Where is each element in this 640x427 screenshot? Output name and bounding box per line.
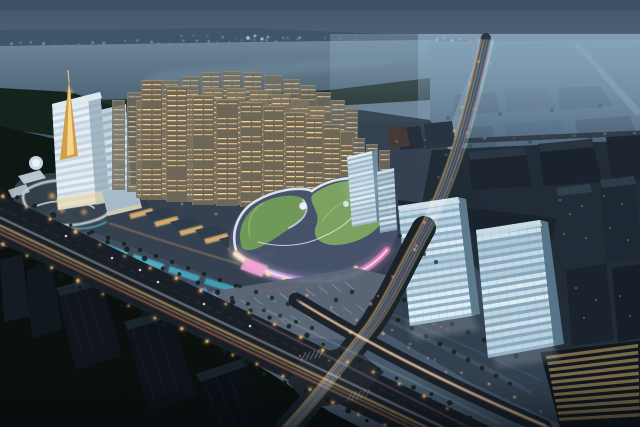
streetlights-road-b	[415, 245, 417, 247]
windows	[153, 159, 161, 160]
windows	[204, 109, 213, 110]
residential-front	[166, 86, 187, 87]
windows	[178, 115, 186, 116]
windows	[296, 146, 304, 147]
windows	[273, 98, 281, 99]
streetlights-cross	[573, 135, 574, 136]
windows	[242, 111, 251, 112]
shop-back-glow	[215, 213, 217, 215]
shore-light-cluster	[254, 35, 256, 37]
windows	[168, 135, 177, 136]
windows	[311, 115, 318, 116]
residential-back	[201, 72, 220, 73]
windows	[119, 154, 124, 155]
windows	[143, 114, 152, 115]
cars-white	[111, 257, 114, 260]
windows	[194, 169, 203, 170]
shore-light-cluster	[267, 36, 269, 38]
windows	[287, 146, 295, 147]
windows	[168, 115, 177, 116]
avenue-trees	[87, 232, 90, 235]
windows	[204, 199, 213, 200]
avenue-trees	[142, 256, 148, 262]
windows	[347, 112, 352, 113]
windows	[242, 106, 251, 107]
windows	[296, 116, 304, 117]
parking-trees	[246, 302, 250, 306]
roof-dome	[343, 201, 349, 207]
streetlights-road-b	[477, 60, 479, 62]
windows	[307, 177, 315, 178]
windows	[252, 181, 261, 182]
windows	[315, 152, 322, 153]
windows	[352, 127, 357, 128]
windows	[252, 141, 261, 142]
windows	[347, 122, 352, 123]
residential-back	[331, 100, 345, 101]
windows	[232, 80, 240, 81]
windows	[218, 153, 227, 154]
windows	[242, 171, 251, 172]
residential-mid	[226, 88, 246, 89]
windows	[218, 118, 227, 119]
windows	[168, 95, 177, 96]
avenue-trees	[287, 324, 292, 329]
windows	[119, 169, 124, 170]
avenue-trees	[244, 360, 250, 366]
windows	[218, 148, 227, 149]
windows	[114, 119, 119, 120]
avenue-trees	[57, 273, 64, 280]
windows	[204, 129, 213, 130]
shore-lights	[193, 35, 194, 36]
windows	[333, 119, 339, 120]
streetlight-halos	[23, 205, 29, 211]
plaza-trees	[438, 342, 443, 347]
windows	[354, 152, 359, 153]
windows	[218, 143, 227, 144]
windows	[228, 178, 237, 179]
windows	[143, 159, 152, 160]
windows	[153, 124, 161, 125]
windows	[143, 99, 152, 100]
windows	[281, 103, 289, 104]
residential-front	[141, 80, 162, 81]
scene-root	[0, 0, 640, 427]
windows	[287, 136, 295, 137]
streetlights-road-b	[458, 156, 459, 157]
avenue-trees	[18, 254, 22, 258]
windows	[168, 165, 177, 166]
windows	[381, 169, 386, 170]
windows	[178, 165, 186, 166]
residential-east	[379, 150, 390, 151]
windows	[381, 159, 386, 160]
windows	[228, 158, 237, 159]
windows	[114, 149, 119, 150]
residential-back	[316, 92, 331, 93]
windows	[218, 158, 227, 159]
windows	[252, 106, 261, 107]
windows	[178, 155, 186, 156]
windows	[205, 92, 213, 93]
dark-tower-windows	[595, 299, 597, 301]
windows	[359, 147, 364, 148]
shore-lights	[10, 43, 12, 45]
dark-tower-windows	[609, 227, 611, 229]
streetlight-halos	[147, 265, 153, 271]
streetlight-halos	[370, 369, 376, 375]
plaza-trees	[480, 366, 485, 371]
windows	[253, 86, 261, 87]
windows	[265, 110, 274, 111]
residential-front	[240, 102, 262, 103]
windows	[242, 141, 251, 142]
windows	[168, 100, 177, 101]
windows	[218, 138, 227, 139]
streetlight-halos	[47, 216, 53, 222]
windows	[168, 120, 177, 121]
residential-front	[166, 86, 187, 202]
windows	[287, 126, 295, 127]
plaza-lights	[445, 371, 447, 373]
windows	[242, 191, 251, 192]
windows	[368, 148, 373, 149]
streetlights-road-b	[444, 202, 446, 204]
streetlight-halos	[197, 287, 205, 295]
avenue-trees	[124, 246, 130, 252]
streetlights-road-c	[306, 294, 309, 297]
windows	[194, 119, 203, 120]
streetlights-cross	[633, 132, 635, 134]
windows	[129, 151, 135, 152]
windows	[129, 161, 135, 162]
dark-tower-windows	[559, 199, 561, 201]
windows	[228, 168, 237, 169]
windows	[129, 136, 135, 137]
cars-white	[203, 303, 206, 306]
windows	[119, 159, 124, 160]
residential-front	[216, 99, 217, 206]
windows	[194, 199, 203, 200]
windows	[178, 120, 186, 121]
windows	[342, 170, 348, 171]
dark-tower-windows	[629, 315, 631, 317]
red-flags	[278, 288, 280, 290]
windows	[129, 156, 135, 157]
windows	[119, 174, 124, 175]
windows	[143, 169, 152, 170]
windows	[296, 161, 304, 162]
residential-mid	[203, 88, 223, 89]
plaza-lights	[427, 357, 429, 359]
windows	[315, 147, 322, 148]
windows	[204, 104, 213, 105]
windows	[114, 134, 119, 135]
shore-lights	[282, 37, 284, 39]
windows	[302, 94, 309, 95]
windows	[260, 99, 268, 100]
windows	[178, 180, 186, 181]
windows	[168, 105, 177, 106]
windows	[153, 119, 161, 120]
windows	[332, 168, 339, 169]
windows	[211, 81, 219, 82]
windows	[318, 96, 324, 97]
windows	[307, 127, 315, 128]
windows	[228, 198, 237, 199]
cars-white	[139, 269, 142, 272]
streetlights-road-c	[356, 319, 358, 321]
windows	[135, 96, 141, 97]
promenade-trees	[218, 278, 222, 282]
windows	[296, 126, 304, 127]
windows	[275, 125, 283, 126]
windows	[332, 163, 339, 164]
windows	[333, 114, 339, 115]
windows	[228, 193, 237, 194]
plaza-trees	[452, 350, 457, 355]
windows	[325, 148, 332, 149]
windows	[168, 145, 177, 146]
windows	[347, 117, 352, 118]
shore-lights	[30, 42, 32, 44]
sky-top-band	[0, 0, 640, 10]
plaza-trees	[466, 358, 471, 363]
windows	[325, 158, 332, 159]
windows	[265, 180, 274, 181]
windows	[332, 173, 339, 174]
residential-back	[222, 71, 241, 72]
red-flags	[287, 287, 289, 289]
windows	[129, 171, 135, 172]
windows	[218, 103, 227, 104]
windows	[119, 134, 124, 135]
residential-front	[263, 106, 284, 107]
residential-front	[216, 99, 238, 100]
residential-front	[192, 95, 193, 205]
canopy-glow	[247, 261, 261, 275]
windows	[309, 94, 315, 95]
windows	[228, 153, 237, 154]
shore-lights	[20, 42, 22, 44]
residential-back	[127, 92, 142, 93]
streetlights-road-b	[349, 331, 352, 334]
avenue-trees	[230, 299, 235, 304]
windows	[194, 154, 203, 155]
windows	[252, 156, 261, 157]
windows	[143, 194, 152, 195]
cars-white	[249, 325, 252, 328]
windows	[359, 142, 364, 143]
windows	[168, 155, 177, 156]
windows	[252, 121, 261, 122]
windows	[287, 121, 295, 122]
windows	[153, 194, 161, 195]
roof-dome	[299, 202, 307, 210]
windows	[325, 163, 332, 164]
windows	[265, 150, 274, 151]
shore-lights	[254, 39, 255, 40]
dark-tower-windows	[583, 317, 585, 319]
streetlights-road-b	[469, 83, 471, 85]
windows	[228, 123, 237, 124]
windows	[191, 80, 198, 81]
windows	[315, 162, 322, 163]
windows	[242, 121, 251, 122]
streetlight-halos	[345, 359, 351, 365]
windows	[119, 149, 124, 150]
streetlights-road-c	[382, 332, 385, 335]
windows	[129, 131, 135, 132]
windows	[119, 124, 124, 125]
windows	[143, 174, 152, 175]
shore-lights	[92, 41, 94, 43]
avenue-trees	[267, 315, 271, 319]
windows	[204, 134, 213, 135]
windows	[194, 194, 203, 195]
streetlights-road-b	[370, 303, 372, 305]
windows	[218, 168, 227, 169]
streetlight-halos	[24, 253, 30, 259]
residential-front	[285, 112, 305, 113]
streetlights-road-b	[437, 223, 439, 225]
windows	[129, 96, 135, 97]
windows	[252, 161, 261, 162]
streetlight-halos	[71, 228, 79, 236]
windows	[253, 81, 261, 82]
tower-bloom	[346, 169, 378, 201]
windows	[253, 76, 261, 77]
streetlights-road-b	[429, 247, 431, 249]
windows	[194, 124, 203, 125]
dark-tower-windows	[575, 287, 577, 289]
streetlights-cross	[484, 137, 486, 139]
windows	[265, 155, 274, 156]
windows	[143, 129, 152, 130]
windows	[352, 117, 357, 118]
windows	[307, 162, 315, 163]
windows	[265, 160, 274, 161]
streetlights-cross	[454, 138, 456, 140]
residential-front	[240, 102, 241, 207]
windows	[245, 81, 253, 82]
windows	[385, 159, 389, 160]
shore-lights	[287, 37, 289, 39]
streetlights-road-b	[328, 360, 330, 362]
shore-lights	[151, 41, 153, 43]
windows	[275, 170, 283, 171]
avenue-trees	[358, 359, 362, 363]
residential-front	[263, 106, 264, 208]
streetlight-halos	[230, 352, 235, 357]
windows	[315, 177, 322, 178]
dark-tower-windows	[569, 213, 571, 215]
shore-lights	[222, 36, 224, 38]
shore-lights	[251, 39, 252, 40]
windows	[318, 115, 324, 116]
windows	[203, 76, 211, 77]
windows	[178, 130, 186, 131]
windows	[324, 106, 330, 107]
cars-red	[377, 295, 379, 297]
avenue-trees	[32, 203, 37, 208]
windows	[143, 139, 152, 140]
streetlights-road-b	[413, 248, 416, 251]
avenue-trees	[120, 304, 125, 309]
promenade-trees	[122, 242, 126, 246]
windows	[266, 84, 274, 85]
windows	[232, 75, 240, 76]
windows	[293, 108, 301, 109]
windows	[309, 89, 315, 90]
windows	[194, 174, 203, 175]
windows	[143, 179, 152, 180]
windows	[332, 128, 339, 129]
shore-lights	[124, 40, 126, 42]
residential-front	[192, 95, 214, 96]
promenade-trees	[186, 266, 190, 270]
windows	[242, 186, 251, 187]
windows	[153, 169, 161, 170]
windows	[194, 114, 203, 115]
windows	[339, 109, 345, 110]
windows	[332, 148, 339, 149]
windows	[307, 182, 315, 183]
residential-back	[162, 80, 179, 81]
avenue-trees	[69, 223, 72, 226]
streetlights-road-b	[451, 179, 452, 180]
windows	[204, 194, 213, 195]
windows	[168, 150, 177, 151]
windows	[332, 138, 339, 139]
windows	[204, 154, 213, 155]
streetlight-halos	[122, 254, 127, 259]
windows	[287, 171, 295, 172]
windows	[143, 144, 152, 145]
streetlight-halos	[271, 321, 277, 327]
streetlight-halos	[319, 347, 326, 354]
windows	[237, 92, 245, 93]
windows	[296, 171, 304, 172]
windows	[214, 92, 222, 93]
windows	[119, 129, 124, 130]
windows	[325, 143, 332, 144]
avenue-trees	[105, 240, 109, 244]
windows	[228, 138, 237, 139]
windows	[218, 173, 227, 174]
windows	[265, 175, 274, 176]
windows	[332, 143, 339, 144]
windows	[114, 109, 119, 110]
residential-front	[141, 80, 142, 200]
windows	[143, 124, 152, 125]
streetlights-cross	[396, 141, 398, 143]
windows	[143, 149, 152, 150]
windows	[228, 143, 237, 144]
windows	[281, 98, 289, 99]
windows	[153, 174, 161, 175]
red-flags	[269, 290, 271, 292]
windows	[204, 124, 213, 125]
windows	[204, 174, 213, 175]
windows	[129, 116, 135, 117]
streetlights-road-b	[423, 221, 425, 223]
windows	[143, 94, 152, 95]
shore-lights	[236, 39, 237, 40]
residential-back	[243, 72, 262, 73]
windows	[296, 151, 304, 152]
